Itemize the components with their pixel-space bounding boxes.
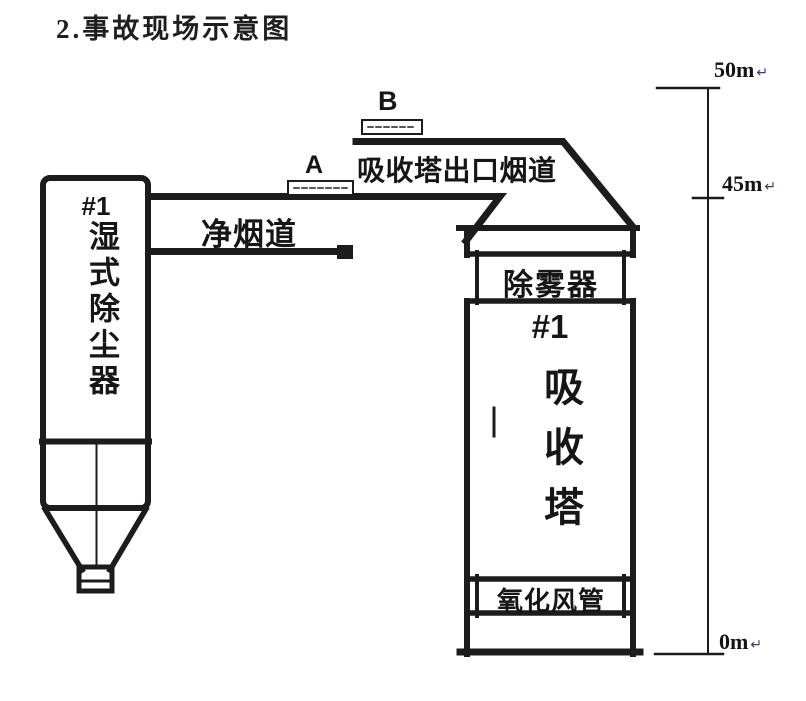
wet-dust-collector-label: 湿式除尘器 xyxy=(79,220,124,400)
paragraph-mark-icon: ↵ xyxy=(756,65,768,81)
point-b-label: B xyxy=(378,86,398,117)
section-title: 2.事故现场示意图 xyxy=(56,7,292,46)
scale-label-50m-text: 50m xyxy=(714,57,754,82)
paragraph-mark-icon: ↵ xyxy=(764,179,776,195)
absorber-unit: #1 xyxy=(505,308,595,346)
demister-right-notch xyxy=(628,258,638,298)
clean-flue-end-cap xyxy=(337,245,353,259)
scale-label-0m: 0m↵ xyxy=(719,629,762,655)
wet-dust-collector-unit: #1 xyxy=(70,191,122,222)
paragraph-mark-icon: ↵ xyxy=(750,637,762,653)
clean-flue-label: 净烟道 xyxy=(201,209,297,254)
scale-label-0m-text: 0m xyxy=(719,629,748,654)
scale-label-45m: 45m↵ xyxy=(722,171,776,197)
scale-label-50m: 50m↵ xyxy=(714,57,768,83)
absorber-label: 吸收塔 xyxy=(531,366,589,546)
point-a-label: A xyxy=(305,151,323,180)
document-page: 2.事故现场示意图 A B 吸收塔出口烟道 净烟道 #1 湿式除尘器 除雾器 #… xyxy=(0,0,806,701)
oxidation-duct-label: 氧化风管 xyxy=(481,581,621,618)
demister-left-notch xyxy=(462,258,472,298)
scale-label-45m-text: 45m xyxy=(722,171,762,196)
demister-label: 除雾器 xyxy=(476,260,626,304)
outlet-flue-label: 吸收塔出口烟道 xyxy=(357,149,557,189)
